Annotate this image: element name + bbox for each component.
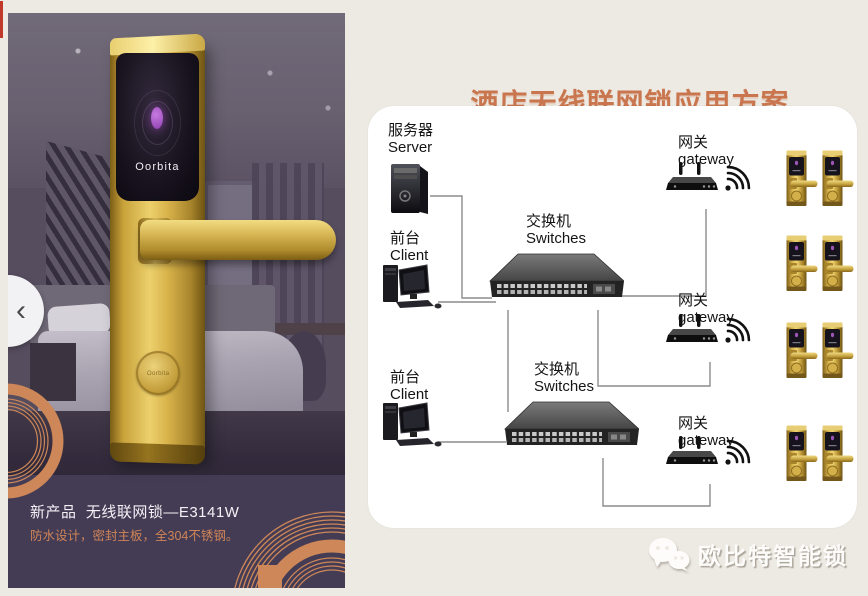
lock-handle — [140, 220, 336, 260]
client2-label: 前台 Client — [390, 369, 428, 403]
switch2-label: 交换机 Switches — [534, 361, 594, 395]
diagram-box: 服务器 Server 前台 Client 交换机 Switches 前台 Cli… — [368, 106, 857, 528]
lock-icon — [786, 149, 818, 209]
product-caption-subtitle: 防水设计，密封主板，全304不锈钢。 — [30, 525, 238, 544]
lock-icon — [822, 424, 854, 484]
watermark: 欧比特智能锁 — [648, 536, 848, 572]
server-icon — [386, 160, 432, 216]
lock-icon — [822, 234, 854, 294]
lock-led-indicator — [151, 107, 163, 129]
lock-logo-disc: Oorbita — [136, 351, 180, 395]
product-caption-title: 新产品 无线联网锁—E3141W — [30, 501, 239, 522]
client1-label: 前台 Client — [390, 230, 428, 264]
ring-decoration-left — [8, 381, 66, 501]
arc-decoration-bottom-right — [220, 460, 345, 588]
lock-icon — [786, 321, 818, 381]
watermark-text: 欧比特智能锁 — [698, 537, 848, 571]
switch1-label: 交换机 Switches — [526, 213, 586, 247]
switch2-icon — [502, 398, 639, 452]
lock-icon — [822, 149, 854, 209]
disc-logo-text: Oorbita — [147, 370, 170, 377]
switch1-icon — [487, 250, 624, 304]
client2-computer-icon — [382, 400, 444, 448]
brand-logo: Oorbita — [116, 161, 199, 173]
corner-marker — [0, 1, 3, 38]
lock-icon — [822, 321, 854, 381]
connection-lines — [368, 112, 857, 528]
wire-switch1-gateway1 — [618, 209, 706, 296]
gateway2-icon — [664, 312, 764, 356]
chevron-left-icon: ‹ — [16, 296, 26, 326]
product-photo-panel: Oorbita Oorbita ‹ 新产品 无线联网锁—E3141W 防水设计，… — [8, 13, 345, 588]
client1-computer-icon — [382, 262, 444, 310]
gateway3-icon — [664, 434, 764, 478]
wechat-icon — [648, 536, 690, 572]
lock-icon — [786, 424, 818, 484]
lock-product-bottom-bevel — [110, 442, 205, 464]
server-label: 服务器 Server — [388, 122, 433, 156]
page: Oorbita Oorbita ‹ 新产品 无线联网锁—E3141W 防水设计，… — [0, 0, 868, 596]
square-decoration — [258, 565, 282, 588]
gateway1-icon — [664, 160, 764, 204]
lock-icon — [786, 234, 818, 294]
